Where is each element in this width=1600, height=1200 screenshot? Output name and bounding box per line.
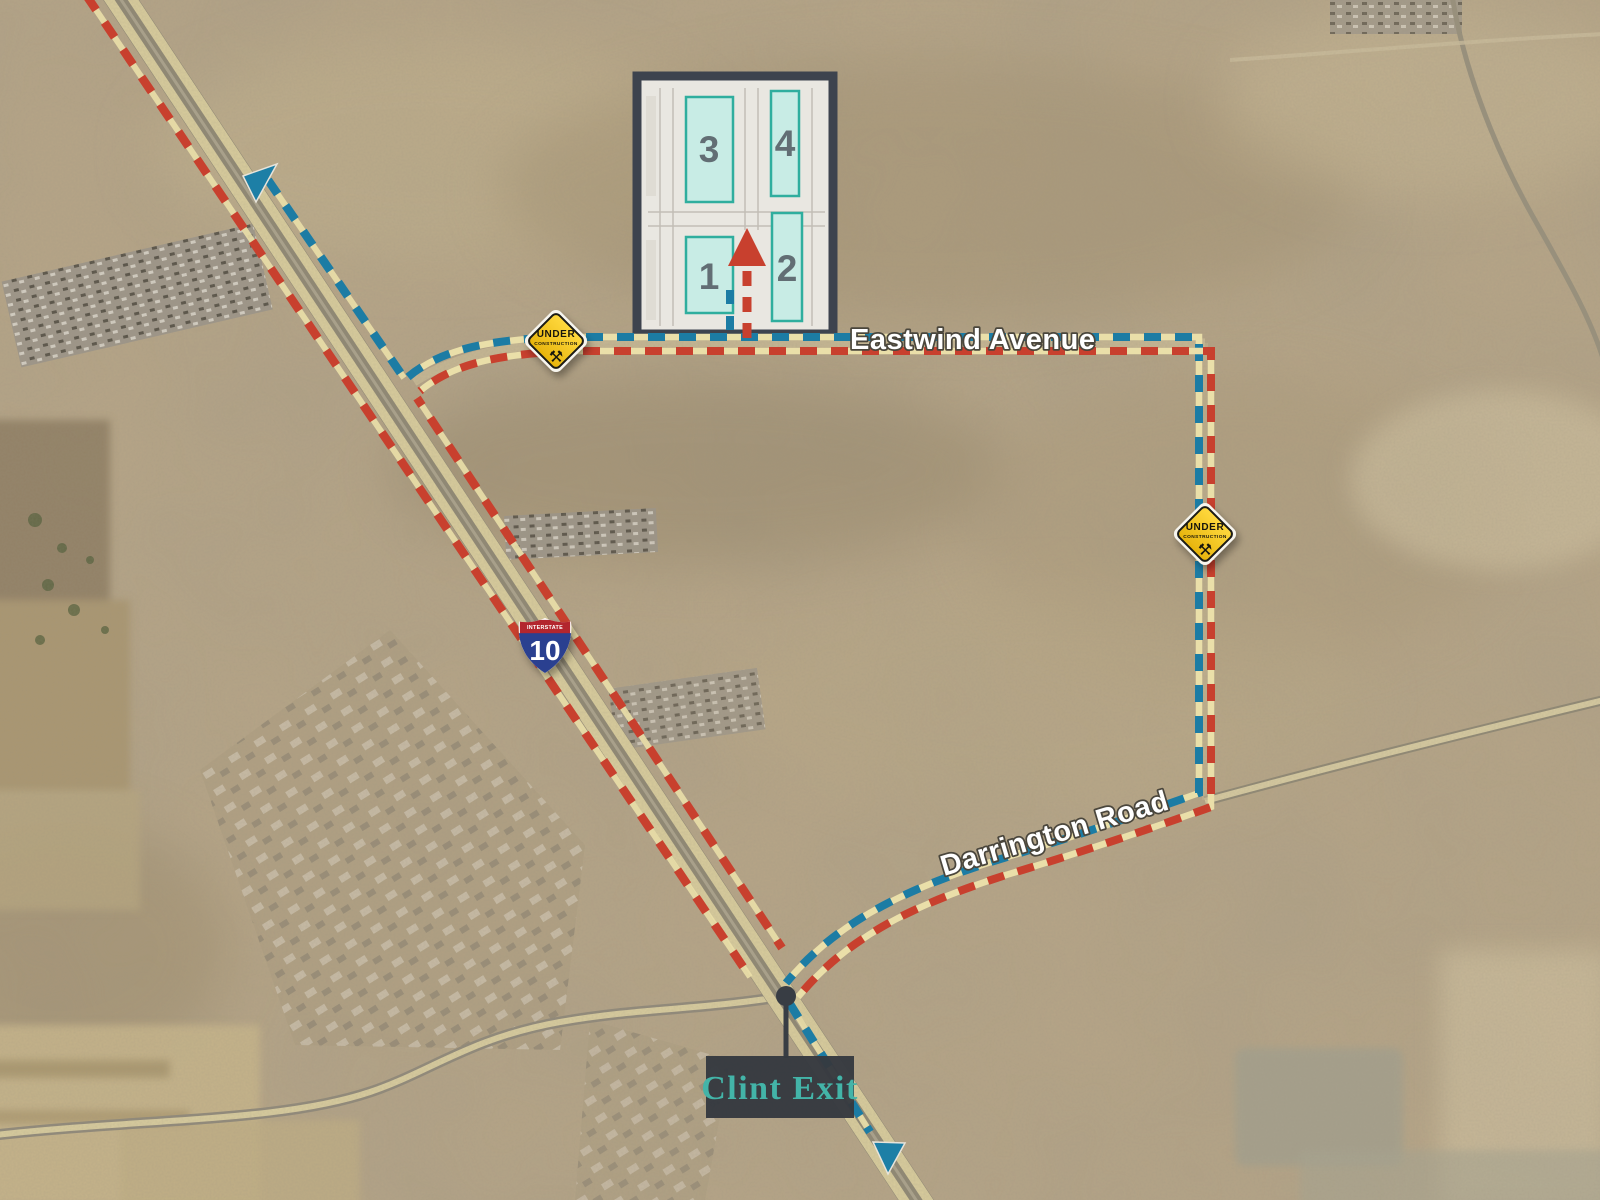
- building-3-number: 3: [699, 129, 720, 170]
- hammer-pick-icon: ⚒: [549, 347, 563, 366]
- clint-exit-label: Clint Exit: [701, 1070, 859, 1107]
- building-3: 3: [686, 97, 733, 202]
- construction-sign-line1: UNDER: [537, 329, 576, 340]
- construction-sign-line1: UNDER: [1186, 522, 1225, 533]
- building-1-number: 1: [699, 256, 720, 297]
- map-canvas: 3 4 1 2: [0, 0, 1600, 1200]
- building-1: 1: [686, 237, 733, 313]
- eastwind-avenue-label: Eastwind Avenue: [850, 324, 1095, 356]
- building-2-number: 2: [777, 248, 798, 289]
- shield-route-number: 10: [529, 635, 560, 666]
- aerial-route-map: 3 4 1 2: [0, 0, 1600, 1200]
- building-2: 2: [772, 213, 802, 321]
- site-plan-inset: 3 4 1 2: [637, 76, 833, 334]
- building-4: 4: [771, 91, 799, 196]
- building-4-number: 4: [775, 123, 796, 164]
- shield-banner-text: INTERSTATE: [527, 625, 563, 631]
- callout-dot: [776, 986, 796, 1006]
- hammer-pick-icon: ⚒: [1198, 540, 1212, 559]
